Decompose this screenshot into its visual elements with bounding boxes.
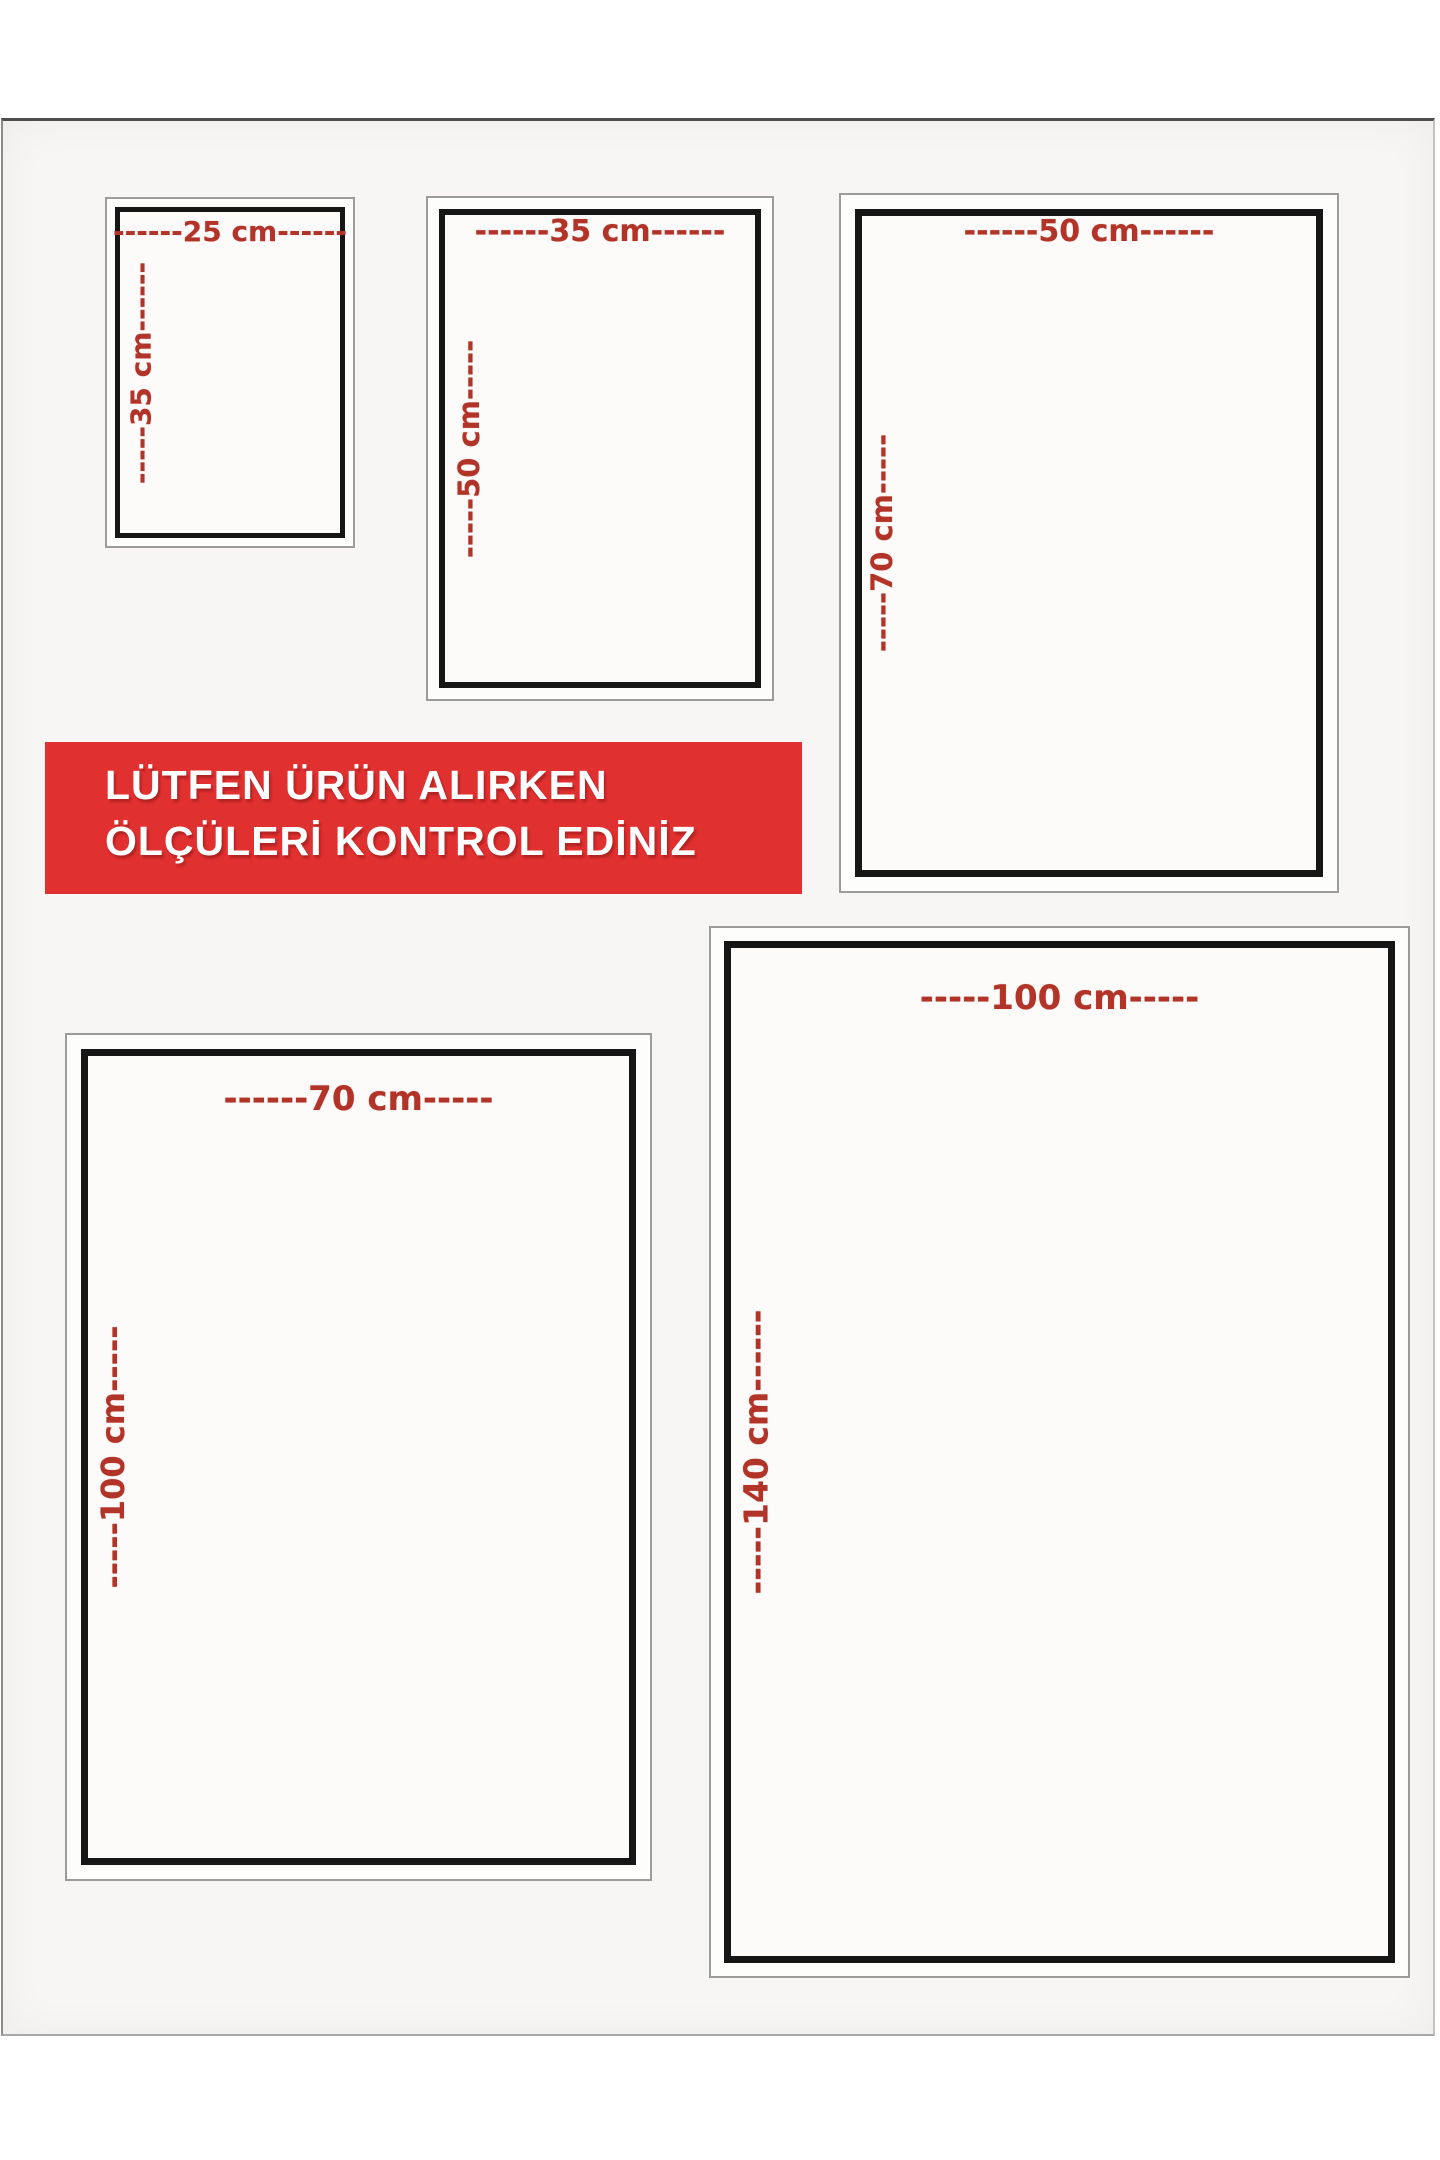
height-label: -----140 cm------: [737, 1310, 776, 1595]
size-frame-35x50: ------35 cm------ -----50 cm-----: [426, 196, 774, 701]
size-frame-border: [855, 209, 1323, 877]
size-frame-100x140: -----100 cm----- -----140 cm------: [709, 926, 1410, 1978]
width-label: -----100 cm-----: [711, 978, 1408, 1018]
height-label: -----70 cm-----: [865, 434, 899, 652]
height-label: -----50 cm-----: [452, 339, 486, 557]
warning-line-2: ÖLÇÜLERİ KONTROL EDİNİZ: [105, 813, 792, 869]
size-frame-50x70: ------50 cm------ -----70 cm-----: [839, 193, 1339, 893]
warning-line-1: LÜTFEN ÜRÜN ALIRKEN: [105, 757, 792, 813]
size-frame-border: [81, 1049, 636, 1865]
product-image-area: ------25 cm------ -----35 cm------ -----…: [1, 118, 1435, 2036]
width-label: ------70 cm-----: [67, 1079, 650, 1119]
size-frame-25x35: ------25 cm------ -----35 cm------: [105, 197, 355, 548]
width-label: ------25 cm------: [107, 215, 353, 248]
height-label: -----35 cm------: [125, 261, 158, 483]
size-frame-border: [724, 941, 1395, 1963]
size-frame-70x100: ------70 cm----- -----100 cm-----: [65, 1033, 652, 1881]
width-label: ------35 cm------: [428, 214, 772, 249]
size-frame-border: [439, 209, 761, 688]
width-label: ------50 cm------: [841, 214, 1337, 249]
warning-banner: LÜTFEN ÜRÜN ALIRKEN ÖLÇÜLERİ KONTROL EDİ…: [45, 742, 802, 894]
height-label: -----100 cm-----: [94, 1325, 132, 1588]
